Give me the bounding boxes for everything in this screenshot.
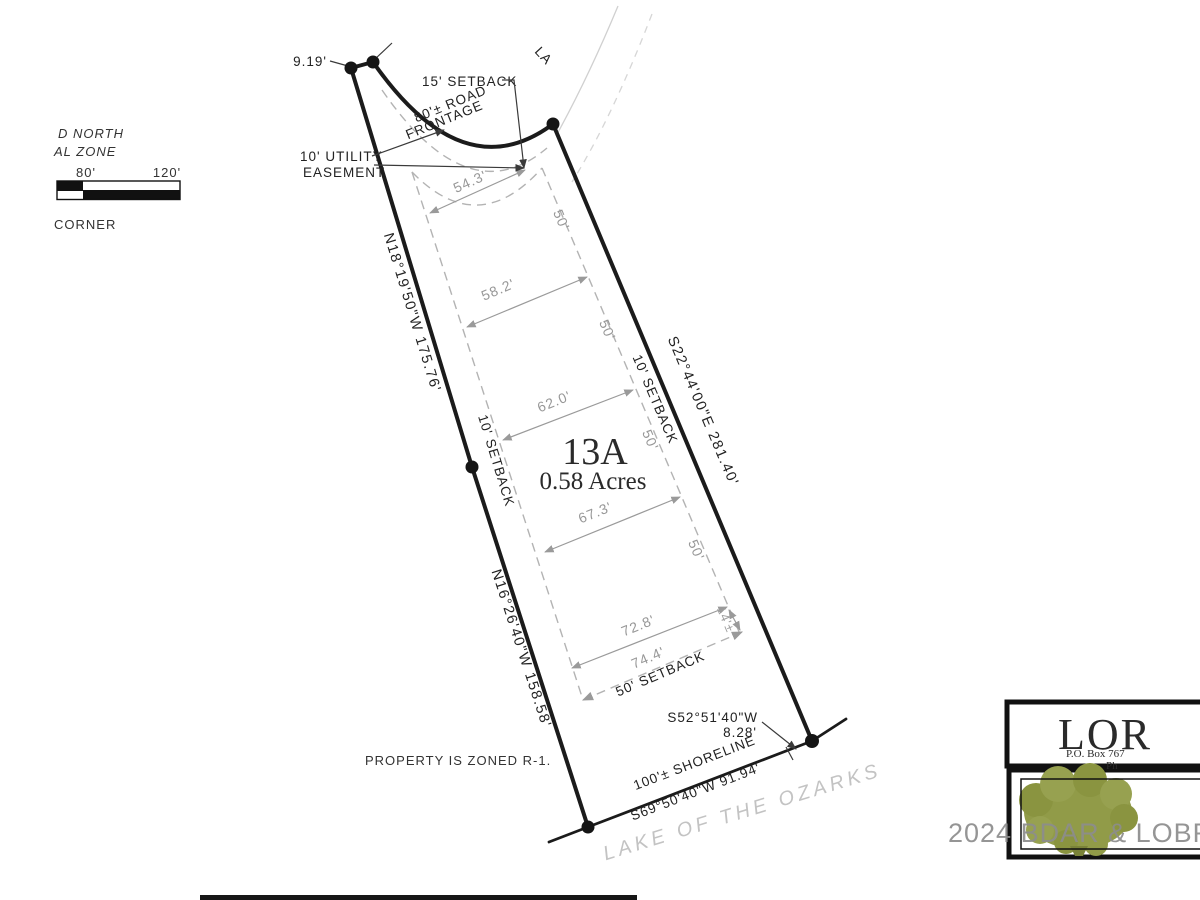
scan-edge-bar	[200, 895, 637, 900]
logo-phone: Ph	[1106, 760, 1118, 772]
lot-number: 13A	[562, 431, 628, 473]
utility-easement-label-2: EASEMENT	[303, 165, 385, 180]
corner-monument-dot-se	[805, 734, 819, 748]
scale-bar-black-top	[57, 181, 83, 191]
corner-offset-dim: 9.19'	[293, 54, 327, 69]
corner-monument-dot-west-mid	[466, 461, 479, 474]
zoning-note: PROPERTY IS ZONED R-1.	[365, 753, 551, 768]
corner-monument-dot-nw2	[367, 56, 380, 69]
scale-bar-black-bottom	[83, 191, 180, 200]
shore-bearing-small: S52°51'40"W	[667, 710, 758, 725]
corner-monument-dot-nw1	[345, 62, 358, 75]
legend-corner-label: CORNER	[54, 217, 116, 232]
corner-monument-dot-ne	[547, 118, 560, 131]
utility-easement-label-1: 10' UTILITY	[300, 149, 383, 164]
corner-monument-dot-sw	[582, 821, 595, 834]
setback15-label: 15' SETBACK	[422, 74, 517, 89]
lot-area: 0.58 Acres	[540, 468, 647, 495]
legend-north-label: D NORTH	[58, 126, 124, 141]
legend-zone-label: AL ZONE	[53, 144, 116, 159]
logo-pobox: P.O. Box 767	[1066, 748, 1125, 760]
scale-label-80: 80'	[76, 165, 96, 180]
mls-watermark: 2024 BDAR & LOBR MLS	[948, 818, 1200, 848]
plat-survey-drawing: 54.3' 58.2' 62.0' 67.3' 72.8' 74.4' 50' …	[0, 0, 1200, 900]
scale-label-120: 120'	[153, 165, 181, 180]
